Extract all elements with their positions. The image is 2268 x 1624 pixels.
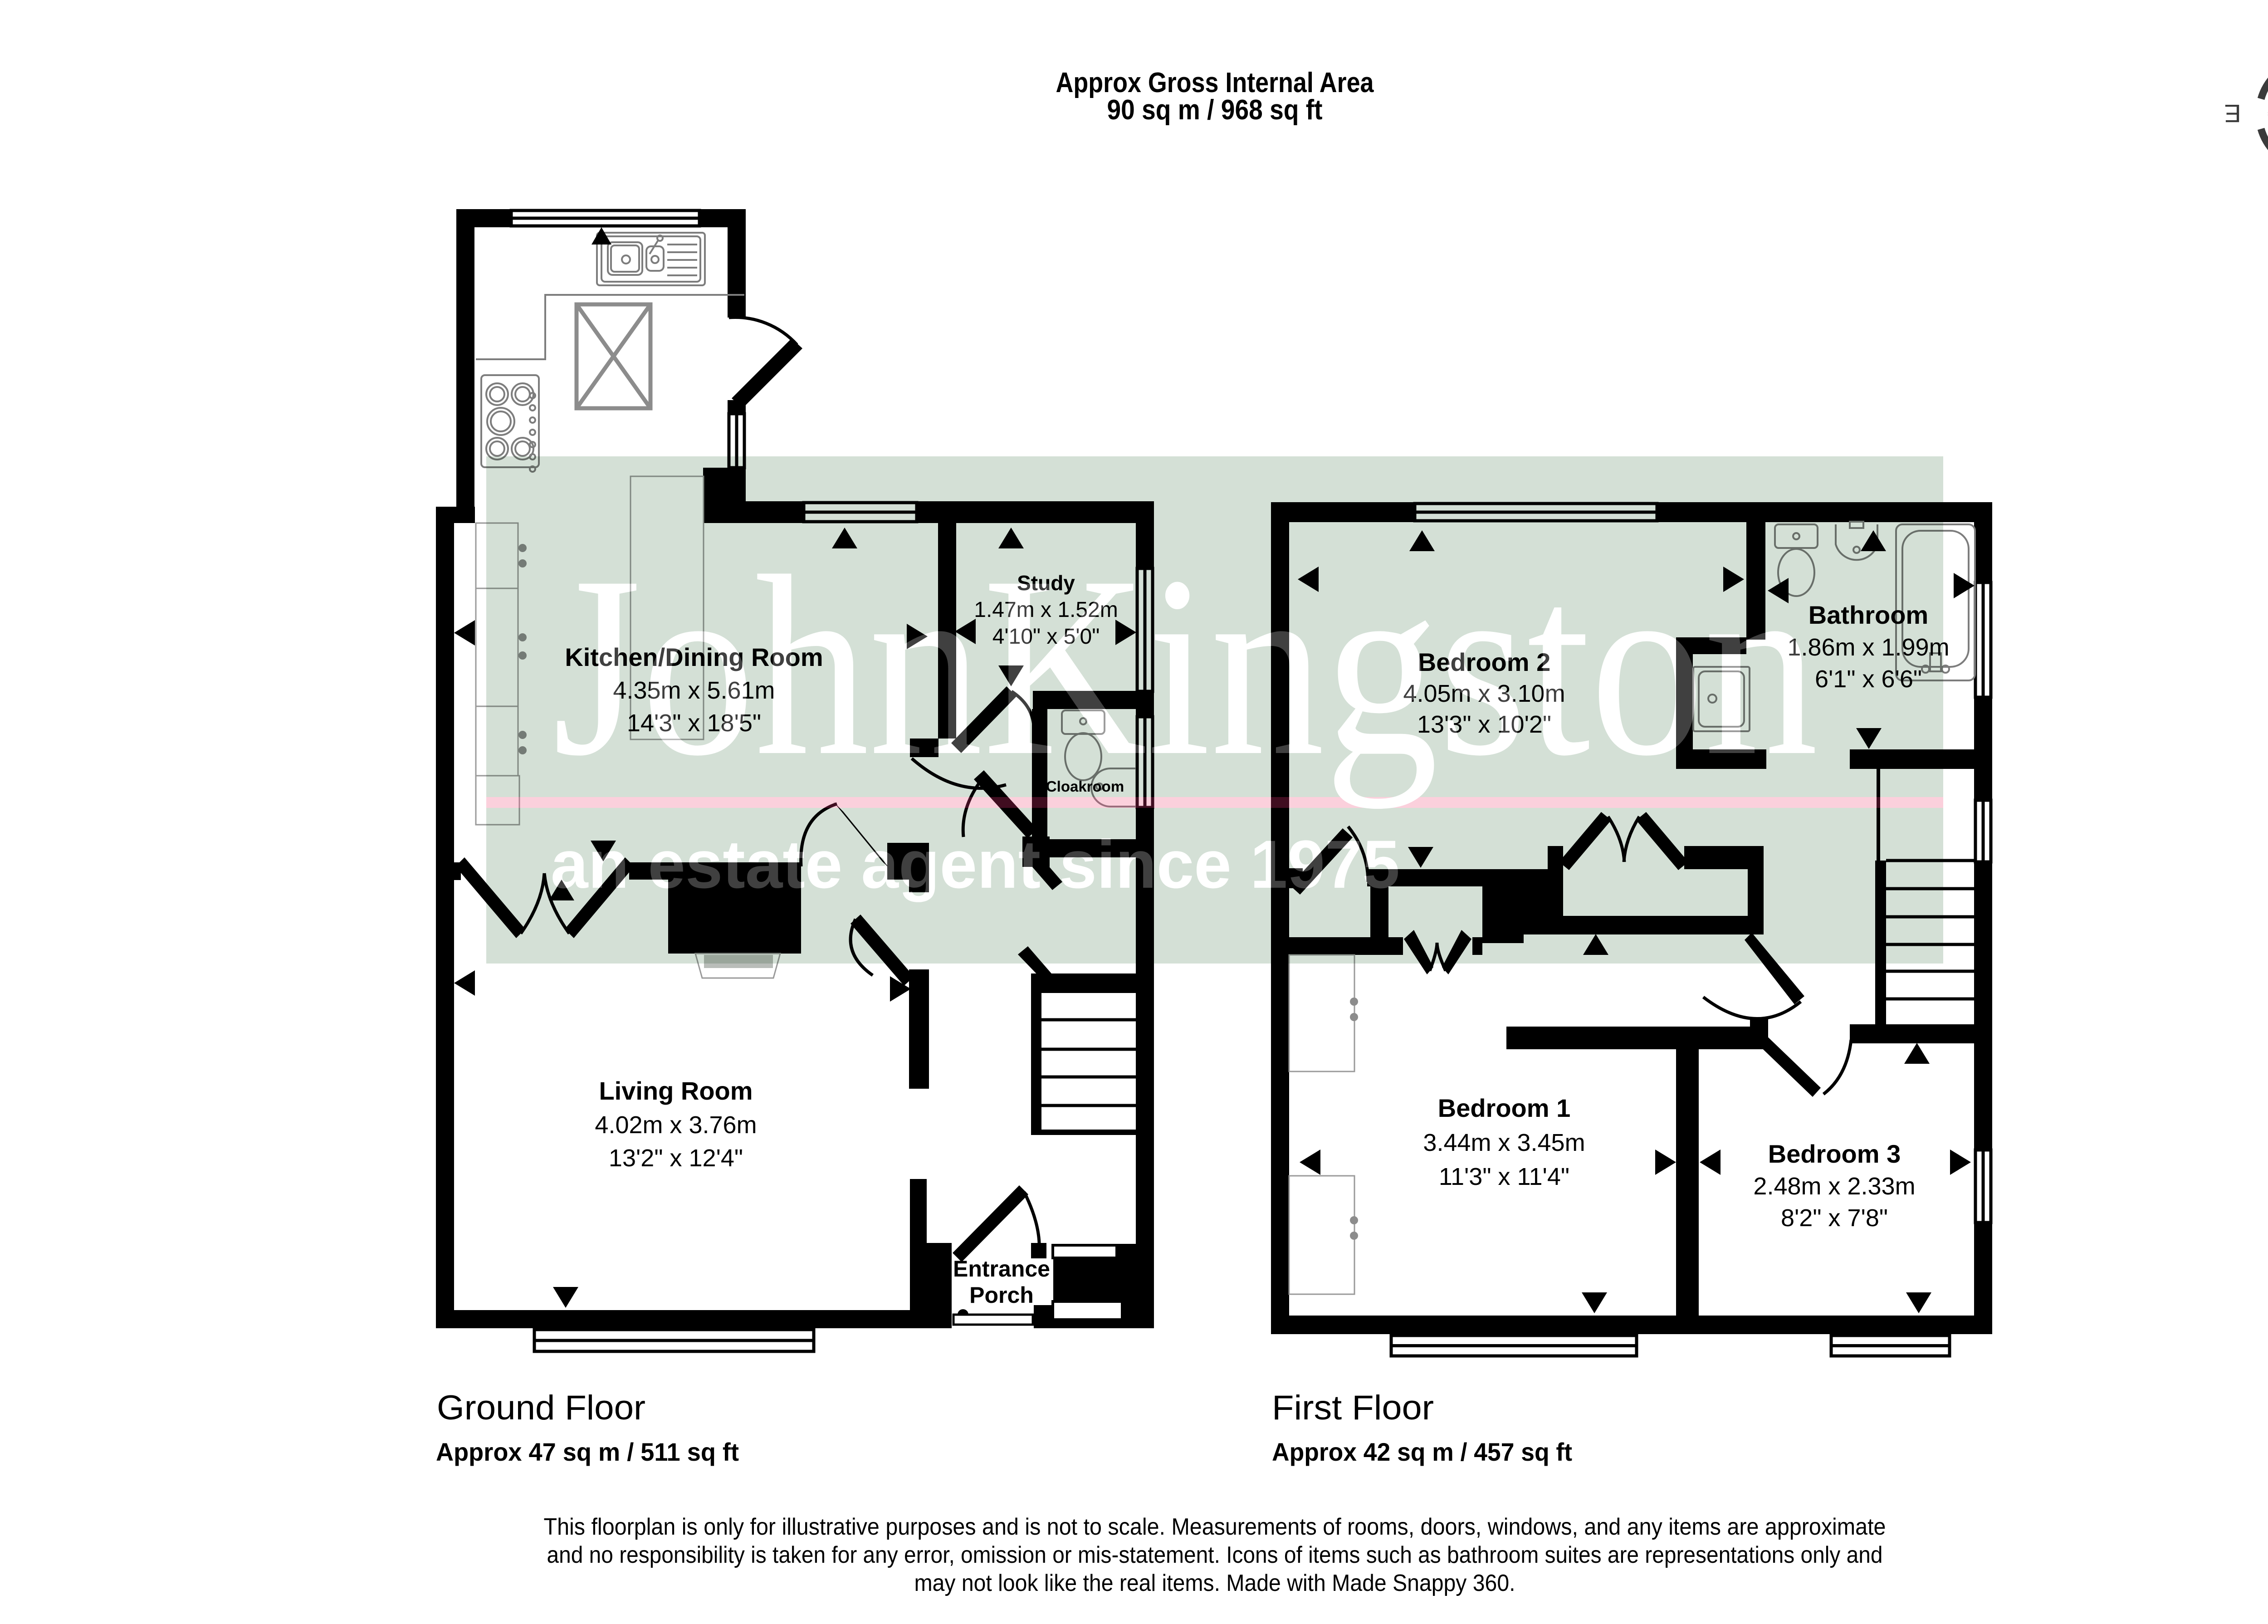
svg-text:First Floor: First Floor (1272, 1389, 1434, 1427)
svg-text:JohnKingston: JohnKingston (552, 523, 1818, 810)
svg-text:E: E (2224, 99, 2241, 128)
svg-text:This floorplan is only for ill: This floorplan is only for illustrative … (544, 1514, 1886, 1540)
svg-text:and no responsibility is taken: and no responsibility is taken for any e… (547, 1542, 1883, 1568)
svg-text:2.48m x 2.33m: 2.48m x 2.33m (1753, 1173, 1915, 1200)
svg-text:Porch: Porch (969, 1282, 1034, 1308)
svg-text:13'2" x 12'4": 13'2" x 12'4" (609, 1145, 743, 1172)
svg-text:Bedroom 1: Bedroom 1 (1438, 1094, 1571, 1122)
svg-text:90 sq m / 968 sq ft: 90 sq m / 968 sq ft (1107, 94, 1323, 126)
svg-text:Approx 42 sq m / 457 sq ft: Approx 42 sq m / 457 sq ft (1272, 1438, 1572, 1466)
svg-text:an estate agent since 1975: an estate agent since 1975 (551, 826, 1400, 902)
svg-text:3.44m x 3.45m: 3.44m x 3.45m (1423, 1129, 1585, 1156)
svg-text:may not look like the real ite: may not look like the real items. Made w… (914, 1570, 1515, 1596)
svg-text:Approx 47 sq m / 511 sq ft: Approx 47 sq m / 511 sq ft (436, 1438, 739, 1466)
svg-text:Approx Gross Internal Area: Approx Gross Internal Area (1056, 67, 1374, 98)
svg-text:4.02m x 3.76m: 4.02m x 3.76m (595, 1111, 757, 1139)
svg-text:8'2" x 7'8": 8'2" x 7'8" (1781, 1204, 1888, 1232)
svg-text:11'3" x 11'4": 11'3" x 11'4" (1439, 1163, 1569, 1190)
svg-text:Ground Floor: Ground Floor (437, 1389, 645, 1427)
svg-text:Bedroom 3: Bedroom 3 (1768, 1140, 1901, 1168)
svg-text:Living Room: Living Room (599, 1076, 753, 1105)
svg-text:Entrance: Entrance (953, 1256, 1050, 1282)
